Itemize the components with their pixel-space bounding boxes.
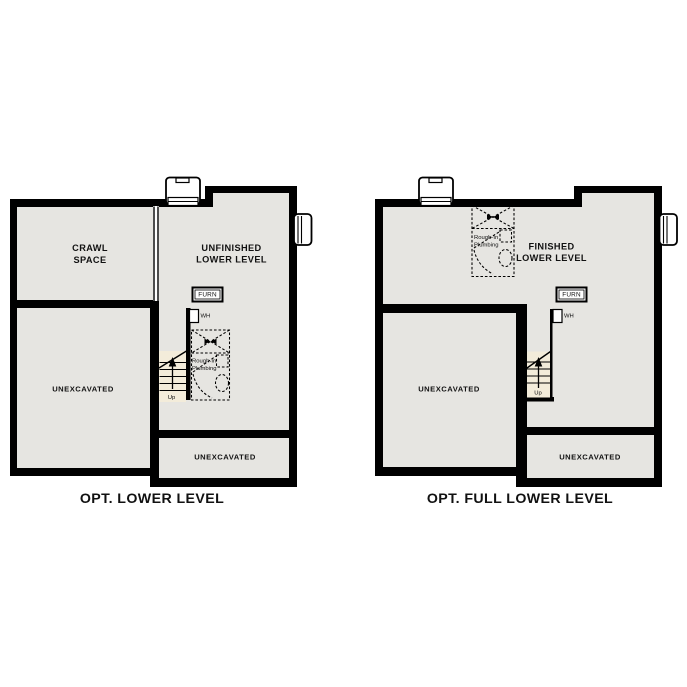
furnace-label: FURN: [562, 292, 581, 299]
wall-stair-bottom: [523, 397, 554, 402]
main-room-label-line1: FINISHED: [528, 242, 574, 252]
wall-mid-horizontal: [10, 300, 159, 308]
floorplan-sheet: Up FURN WH Rough-In Plumbing: [0, 0, 687, 687]
crawl-space-room: [13, 203, 156, 303]
window-bay-icon: [294, 214, 312, 245]
stairs: Up: [527, 352, 551, 398]
water-heater-outline: [190, 310, 199, 323]
fireplace-icon: [419, 178, 453, 206]
window-bay-icon: [660, 214, 678, 245]
side-unexcavated-label: UNEXCAVATED: [418, 385, 480, 394]
floorplans-svg: Up FURN WH Rough-In Plumbing: [0, 0, 687, 687]
crawl-space-label-line2: SPACE: [74, 255, 107, 265]
plumbing-label-line2: Plumbing: [192, 366, 217, 372]
water-heater-label: WH: [564, 314, 574, 320]
crawl-space-label-line1: CRAWL: [72, 243, 108, 253]
stairs: Up: [159, 351, 187, 402]
wall-bottom-left: [10, 468, 154, 476]
wall-left: [375, 199, 383, 476]
wall-center-vertical: [150, 300, 159, 487]
wall-bottomroom-top: [159, 430, 297, 438]
main-room-label-line2: LOWER LEVEL: [516, 253, 587, 263]
window-bay-outline: [294, 214, 312, 245]
wall-sideroom-bottom: [375, 467, 523, 476]
wall-bottomroom-top: [527, 427, 662, 435]
furnace-box: FURN: [557, 288, 587, 302]
bottom-unexcavated-label: UNEXCAVATED: [559, 453, 621, 462]
window-bay-outline: [660, 214, 678, 245]
fireplace-notch: [176, 178, 189, 183]
water-heater-label: WH: [201, 314, 211, 320]
main-room-label-line2: LOWER LEVEL: [196, 255, 267, 265]
plumbing-label-line1: Rough-In: [474, 235, 498, 241]
bottom-unexcavated-label: UNEXCAVATED: [194, 453, 256, 462]
wall-center-vertical: [516, 304, 527, 487]
wall-bottom: [150, 478, 297, 487]
wall-bottom: [516, 478, 662, 487]
fireplace-notch: [429, 178, 442, 183]
wall-stair-right-thin: [550, 309, 553, 398]
plan-caption: OPT. LOWER LEVEL: [80, 491, 224, 507]
wall-top-right: [574, 186, 662, 193]
plan-opt-lower-level: Up FURN WH Rough-In Plumbing: [10, 178, 312, 508]
plan-opt-full-lower-level: Up FURN WH Rough-In Plumbing: [375, 178, 677, 508]
wall-top-right: [205, 186, 297, 193]
stairs-up-label: Up: [168, 395, 176, 401]
fireplace-icon: [166, 178, 200, 206]
plumbing-label-line2: Plumbing: [474, 243, 499, 249]
plumbing-label-line1: Rough-In: [192, 359, 216, 365]
wall-left: [10, 199, 17, 476]
water-heater-outline: [553, 310, 562, 323]
plan-caption: OPT. FULL LOWER LEVEL: [427, 491, 613, 507]
main-room-label-line1: UNFINISHED: [201, 243, 261, 253]
side-unexcavated-label: UNEXCAVATED: [52, 385, 114, 394]
furnace-box: FURN: [193, 288, 223, 302]
wall-sideroom-top: [375, 304, 523, 313]
furnace-label: FURN: [198, 292, 217, 299]
stairs-up-label: Up: [534, 391, 542, 397]
